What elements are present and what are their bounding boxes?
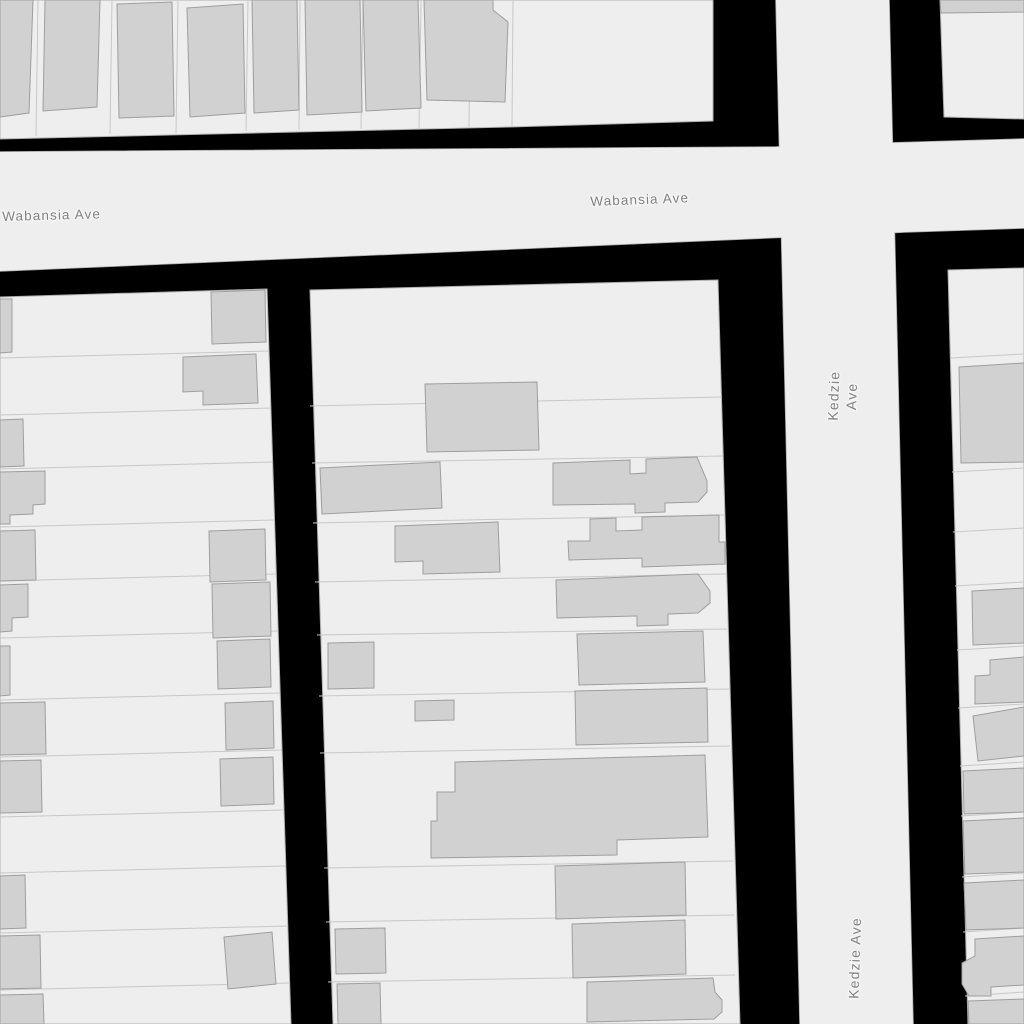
building-footprint-block-south-east xyxy=(972,588,1024,645)
building-footprint-block-north-west xyxy=(43,0,100,111)
building-footprint-block-south-center xyxy=(575,688,708,745)
building-footprint-block-south-center xyxy=(337,983,381,1024)
building-footprint-block-south-center xyxy=(577,631,705,685)
building-footprint-block-south-west xyxy=(224,932,276,989)
building-footprint-block-south-east xyxy=(973,707,1024,761)
parcel-block-north-east xyxy=(940,0,1024,119)
building-footprint-block-south-east xyxy=(963,768,1024,814)
building-footprint-block-south-west xyxy=(0,299,12,353)
building-footprint-block-north-west xyxy=(363,0,421,111)
map-canvas[interactable]: Wabansia AveWabansia AveKedzieAveKedzie … xyxy=(0,0,1024,1024)
building-footprint-block-south-east xyxy=(968,999,1024,1024)
building-footprint-block-south-center xyxy=(568,515,725,567)
building-footprint-block-south-east xyxy=(963,818,1024,874)
map-svg xyxy=(0,0,1024,1024)
building-footprint-block-north-east xyxy=(940,0,1024,13)
building-footprint-block-north-west xyxy=(0,0,33,117)
building-footprint-block-south-west xyxy=(0,419,24,467)
building-footprint-block-south-center xyxy=(328,642,374,689)
building-footprint-block-south-center xyxy=(415,700,454,721)
building-footprint-block-south-west xyxy=(217,639,271,689)
building-footprint-block-south-west xyxy=(209,529,266,582)
building-footprint-block-south-west xyxy=(220,757,274,806)
building-footprint-block-south-east xyxy=(959,363,1024,463)
building-footprint-block-south-west xyxy=(0,760,42,813)
building-footprint-block-south-center xyxy=(572,920,686,978)
building-footprint-block-south-west xyxy=(0,994,44,1024)
building-footprint-block-north-west xyxy=(187,4,245,117)
building-footprint-block-south-center xyxy=(425,382,539,452)
building-footprint-block-south-west xyxy=(0,702,46,755)
building-footprint-block-north-west xyxy=(305,0,362,115)
building-footprint-block-south-west xyxy=(0,646,10,696)
building-footprint-block-south-center xyxy=(587,978,722,1022)
building-footprint-block-north-west xyxy=(252,0,299,113)
building-footprint-block-south-west xyxy=(212,582,271,638)
building-footprint-block-south-west xyxy=(225,701,274,750)
road-fill-kedzie-ave xyxy=(776,0,913,1024)
building-footprint-block-south-west xyxy=(0,875,26,929)
building-footprint-block-south-west xyxy=(0,530,36,581)
building-footprint-block-south-center xyxy=(335,928,386,974)
building-footprint-block-north-west xyxy=(424,0,508,102)
building-footprint-block-south-center xyxy=(555,862,686,919)
building-footprint-block-south-center xyxy=(320,462,442,514)
building-footprint-block-south-west xyxy=(211,290,266,344)
building-footprint-block-north-west xyxy=(117,2,174,118)
building-footprint-block-south-east xyxy=(964,880,1024,930)
building-footprint-block-south-west xyxy=(0,935,41,989)
